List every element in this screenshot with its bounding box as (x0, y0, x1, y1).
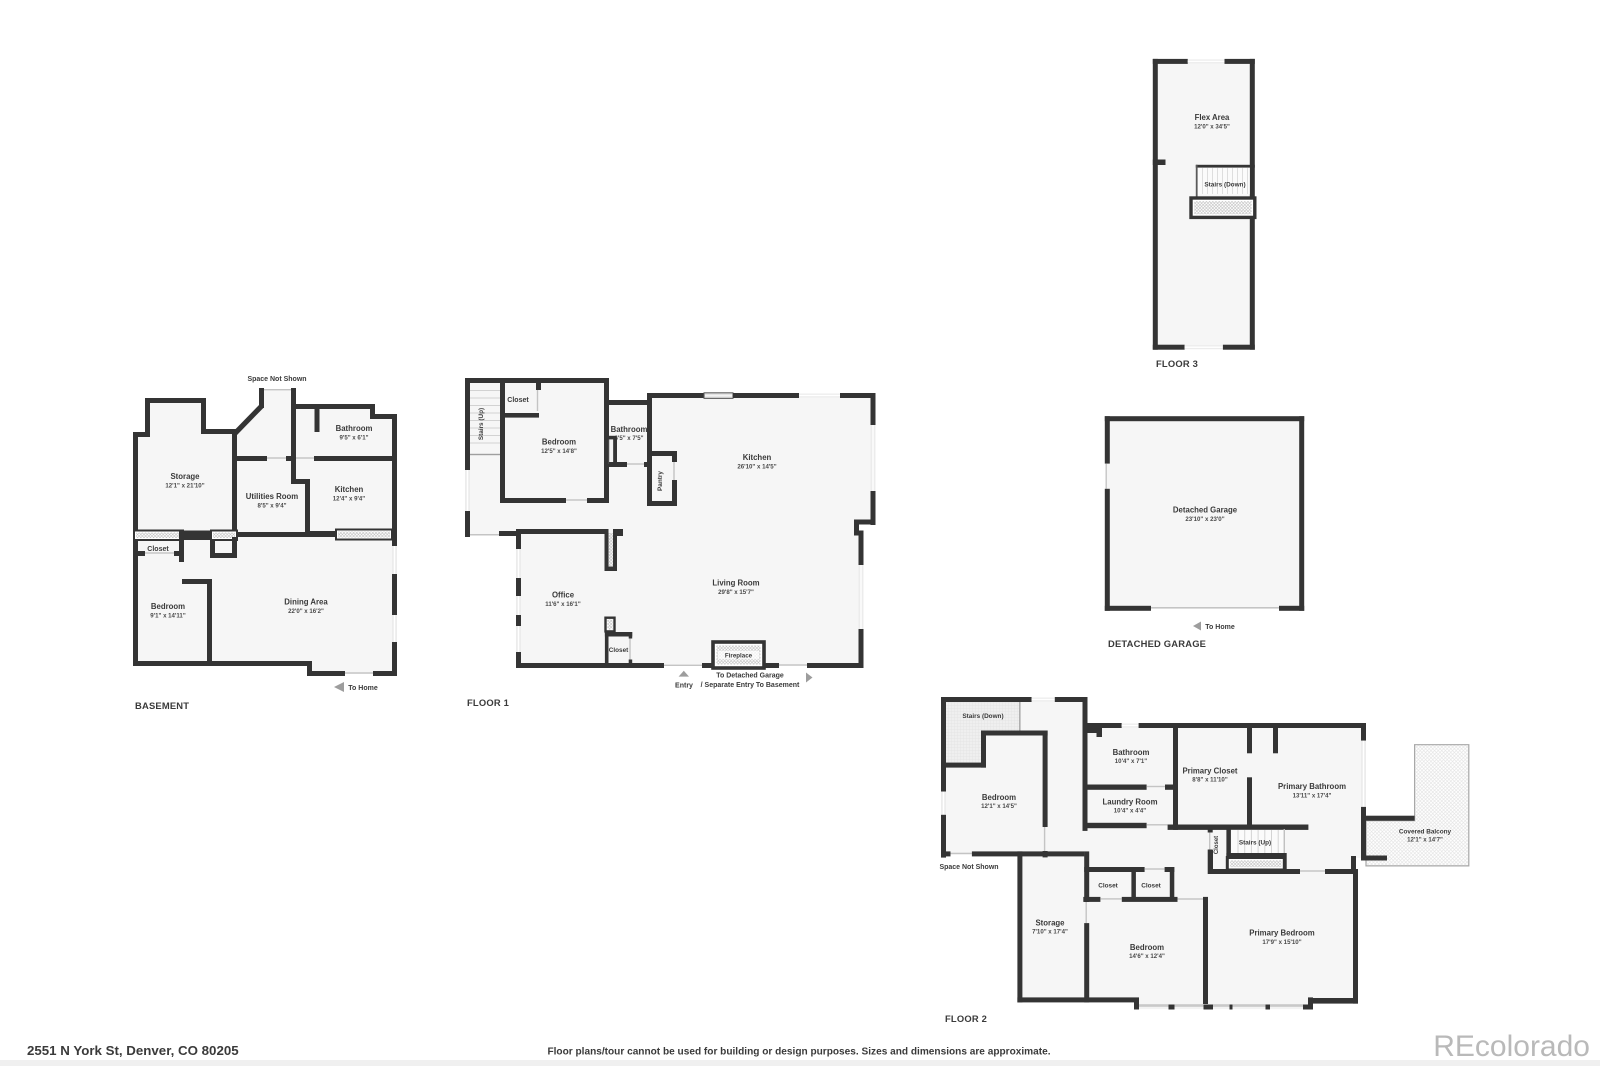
svg-text:14'6" x 12'4": 14'6" x 12'4" (1129, 953, 1165, 960)
svg-text:Entry: Entry (675, 683, 693, 690)
svg-text:Bedroom: Bedroom (542, 438, 576, 447)
svg-text:Bedroom: Bedroom (151, 602, 185, 611)
svg-text:12'4" x 9'4": 12'4" x 9'4" (333, 496, 366, 503)
svg-text:To Detached Garage: To Detached Garage (716, 673, 784, 680)
svg-text:Bathroom: Bathroom (336, 424, 373, 433)
svg-text:Floor plans/tour cannot be use: Floor plans/tour cannot be used for buil… (547, 1047, 1050, 1058)
svg-text:DETACHED GARAGE: DETACHED GARAGE (1108, 638, 1206, 649)
svg-text:8'8" x 11'10": 8'8" x 11'10" (1192, 777, 1228, 784)
svg-text:12'5" x 14'8": 12'5" x 14'8" (541, 448, 577, 455)
svg-text:Stairs (Up): Stairs (Up) (478, 408, 485, 440)
svg-text:Primary Bathroom: Primary Bathroom (1278, 782, 1346, 791)
svg-text:Pantry: Pantry (657, 471, 664, 491)
svg-text:22'0" x 16'2": 22'0" x 16'2" (288, 608, 324, 615)
svg-text:Detached Garage: Detached Garage (1173, 506, 1238, 515)
svg-text:Living Room: Living Room (712, 579, 759, 588)
svg-text:Primary Bedroom: Primary Bedroom (1249, 929, 1314, 938)
svg-text:10'4" x 4'4": 10'4" x 4'4" (1114, 808, 1147, 815)
svg-text:11'6" x 16'1": 11'6" x 16'1" (545, 601, 581, 608)
svg-text:12'1" x 14'7": 12'1" x 14'7" (1407, 837, 1443, 844)
svg-text:7'10" x 17'4": 7'10" x 17'4" (1032, 929, 1068, 936)
svg-text:Storage: Storage (1035, 919, 1065, 928)
svg-text:Closet: Closet (1214, 836, 1220, 854)
svg-text:Primary Closet: Primary Closet (1182, 767, 1237, 776)
svg-text:Bathroom: Bathroom (611, 425, 648, 434)
svg-text:Dining Area: Dining Area (284, 598, 328, 607)
svg-text:Closet: Closet (507, 397, 529, 404)
svg-text:Bedroom: Bedroom (982, 793, 1016, 802)
svg-text:Closet: Closet (1098, 883, 1118, 890)
svg-text:6'5" x 7'5": 6'5" x 7'5" (614, 435, 643, 442)
svg-text:8'5" x 9'4": 8'5" x 9'4" (257, 503, 286, 510)
svg-text:26'10" x 14'5": 26'10" x 14'5" (737, 464, 776, 471)
svg-text:BASEMENT: BASEMENT (135, 700, 189, 711)
svg-text:23'10" x 23'0": 23'10" x 23'0" (1185, 516, 1224, 523)
svg-text:17'9" x 15'10": 17'9" x 15'10" (1262, 939, 1301, 946)
svg-text:Stairs (Up): Stairs (Up) (1239, 840, 1271, 847)
svg-text:9'5" x 6'1": 9'5" x 6'1" (339, 435, 368, 442)
svg-text:To Home: To Home (1205, 624, 1235, 631)
svg-text:Stairs (Down): Stairs (Down) (1204, 182, 1245, 189)
svg-text:Stairs (Down): Stairs (Down) (962, 713, 1003, 720)
svg-text:Closet: Closet (1141, 883, 1161, 890)
svg-text:Office: Office (552, 591, 575, 600)
svg-text:Utilities Room: Utilities Room (246, 492, 298, 501)
svg-text:Storage: Storage (170, 472, 200, 481)
svg-text:13'11" x 17'4": 13'11" x 17'4" (1293, 793, 1332, 800)
svg-text:FLOOR 3: FLOOR 3 (1156, 358, 1198, 369)
svg-text:Kitchen: Kitchen (743, 453, 772, 462)
svg-text:REcolorado: REcolorado (1433, 1030, 1590, 1063)
svg-text:Space Not Shown: Space Not Shown (939, 864, 998, 871)
svg-text:Bathroom: Bathroom (1113, 748, 1150, 757)
svg-text:Laundry Room: Laundry Room (1102, 798, 1157, 807)
svg-text:10'4" x 7'1": 10'4" x 7'1" (1115, 758, 1148, 765)
svg-text:Bedroom: Bedroom (1130, 943, 1164, 952)
svg-text:/ Separate Entry To Basement: / Separate Entry To Basement (701, 682, 800, 689)
svg-text:FLOOR 1: FLOOR 1 (467, 697, 509, 708)
svg-text:2551 N York St, Denver, CO 802: 2551 N York St, Denver, CO 80205 (27, 1043, 239, 1058)
svg-text:Closet: Closet (609, 647, 629, 654)
svg-text:29'8" x 15'7": 29'8" x 15'7" (718, 589, 754, 596)
svg-text:Fireplace: Fireplace (725, 653, 753, 660)
svg-text:Closet: Closet (147, 546, 169, 553)
svg-text:Space Not Shown: Space Not Shown (247, 376, 306, 383)
svg-text:12'1" x 14'5": 12'1" x 14'5" (981, 803, 1017, 810)
svg-text:Covered Balcony: Covered Balcony (1399, 829, 1452, 836)
svg-text:Flex Area: Flex Area (1195, 113, 1230, 122)
svg-text:9'1" x 14'11": 9'1" x 14'11" (150, 613, 186, 620)
svg-text:12'0" x 34'5": 12'0" x 34'5" (1194, 124, 1230, 131)
svg-text:Kitchen: Kitchen (335, 485, 364, 494)
svg-text:FLOOR 2: FLOOR 2 (945, 1013, 987, 1024)
svg-text:12'1" x 21'10": 12'1" x 21'10" (165, 483, 204, 490)
svg-text:To Home: To Home (348, 685, 378, 692)
